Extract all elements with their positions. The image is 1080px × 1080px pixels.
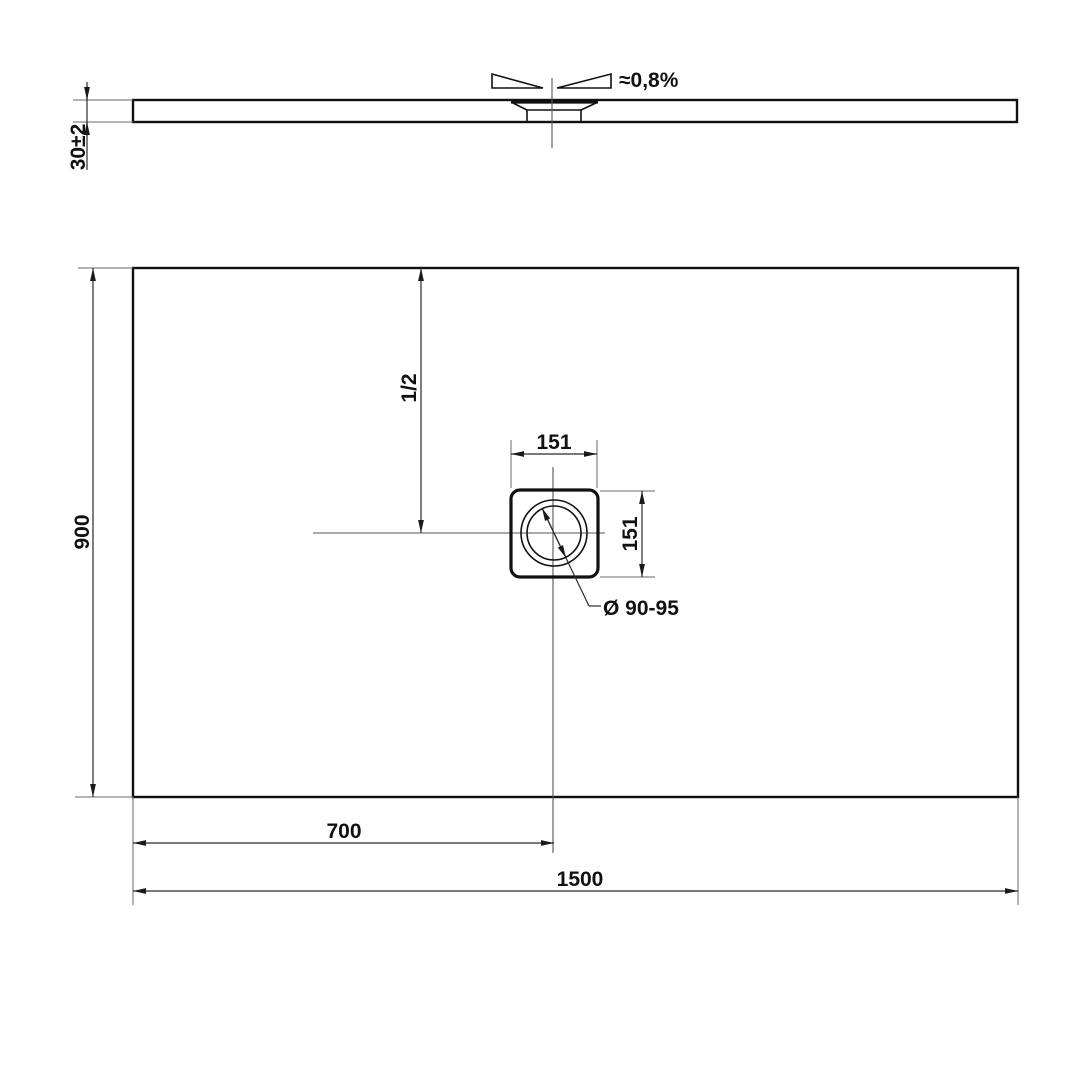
side-view: ≈0,8% 30±2	[67, 69, 1017, 170]
drain-width-dimension: 151	[511, 431, 597, 488]
thickness-dimension-label: 30±2	[67, 124, 90, 171]
drain-width-label: 151	[536, 431, 571, 454]
width-label: 1500	[557, 868, 604, 891]
height-dimension: 900	[71, 268, 133, 797]
side-view-drain-slant-right	[581, 103, 596, 110]
shower-tray-drawing: ≈0,8% 30±2 Ø 90-95	[0, 0, 1080, 1080]
slope-symbol-left	[492, 74, 543, 88]
thickness-dimension: 30±2	[67, 82, 133, 170]
width-dimension: 1500	[133, 868, 1018, 891]
drain-diameter-label: Ø 90-95	[603, 597, 679, 620]
drain-height-label: 151	[619, 516, 642, 551]
half-height-dimension: 1/2	[398, 268, 421, 533]
half-height-label: 1/2	[398, 373, 421, 402]
height-label: 900	[71, 514, 94, 549]
drain-diameter-arrow-lower-icon	[554, 533, 566, 558]
drain-height-dimension: 151	[600, 491, 655, 577]
technical-drawing-canvas: ≈0,8% 30±2 Ø 90-95	[0, 0, 1080, 1080]
side-view-drain-slant-left	[513, 103, 527, 110]
drain-offset-dimension: 700	[133, 820, 554, 843]
slope-symbol-right	[557, 74, 611, 88]
drain-diameter-arrow-upper-icon	[542, 508, 554, 533]
drain-diameter-dimension: Ø 90-95	[542, 508, 679, 620]
drain-offset-label: 700	[326, 820, 361, 843]
slope-label: ≈0,8%	[619, 69, 679, 92]
plan-view: Ø 90-95 151 151 1/2 900	[71, 268, 1018, 905]
